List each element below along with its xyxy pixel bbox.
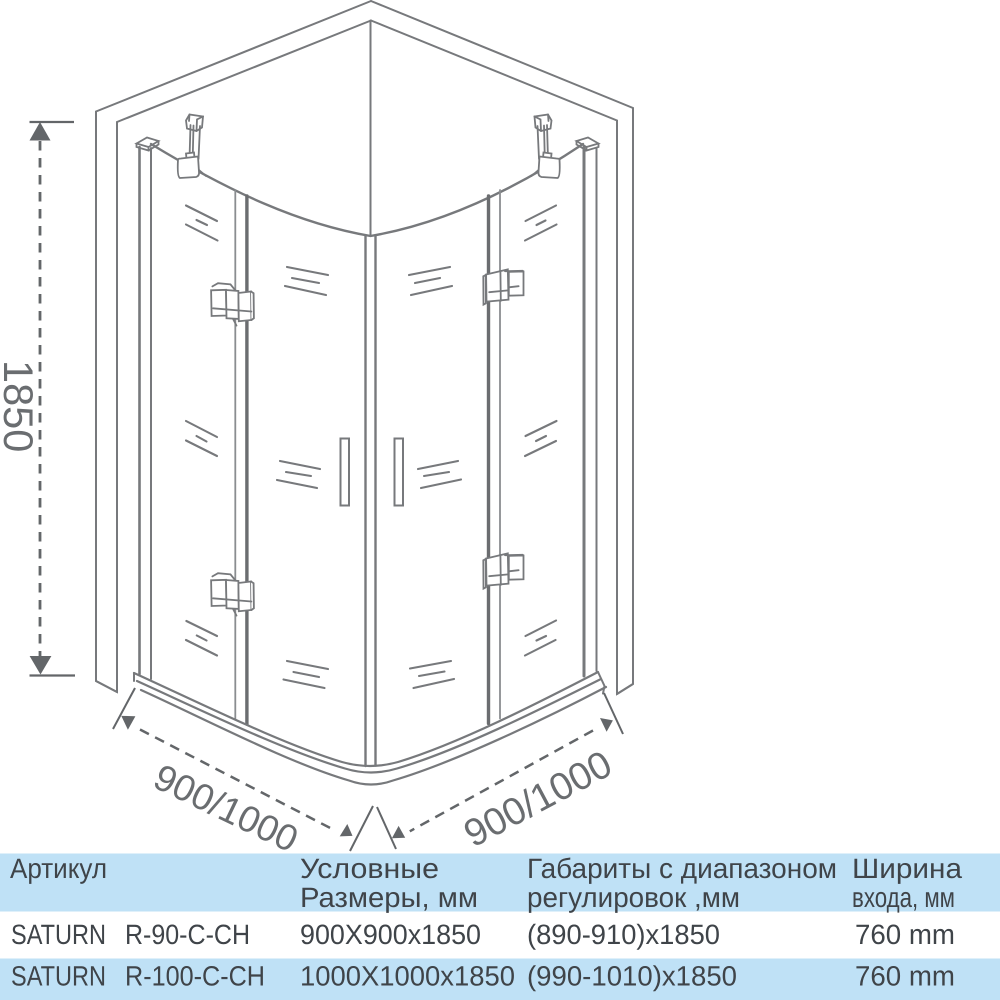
- svg-text:(990-1010)x1850: (990-1010)x1850: [527, 961, 737, 992]
- svg-text:Ширина: Ширина: [852, 853, 962, 884]
- svg-text:900/1000: 900/1000: [148, 756, 305, 860]
- svg-text:регулировок ,мм: регулировок ,мм: [527, 882, 740, 913]
- svg-text:1850: 1850: [0, 360, 42, 452]
- svg-text:SATURN: SATURN: [11, 961, 106, 992]
- svg-text:Размеры, мм: Размеры, мм: [300, 882, 478, 913]
- svg-text:760 mm: 760 mm: [855, 961, 955, 992]
- svg-text:Артикул: Артикул: [10, 853, 107, 884]
- svg-text:760 mm: 760 mm: [855, 919, 955, 950]
- svg-text:Габариты с диапазоном: Габариты с диапазоном: [527, 853, 837, 884]
- svg-text:входа, мм: входа, мм: [852, 882, 955, 913]
- svg-text:1000X1000x1850: 1000X1000x1850: [300, 961, 515, 992]
- svg-text:900X900x1850: 900X900x1850: [300, 919, 481, 950]
- svg-text:(890-910)x1850: (890-910)x1850: [527, 919, 720, 950]
- svg-text:R-90-C-CH: R-90-C-CH: [125, 919, 250, 950]
- svg-text:SATURN: SATURN: [11, 919, 106, 950]
- svg-text:900/1000: 900/1000: [457, 743, 619, 856]
- svg-text:R-100-C-CH: R-100-C-CH: [125, 961, 265, 992]
- svg-text:Условные: Условные: [300, 853, 439, 884]
